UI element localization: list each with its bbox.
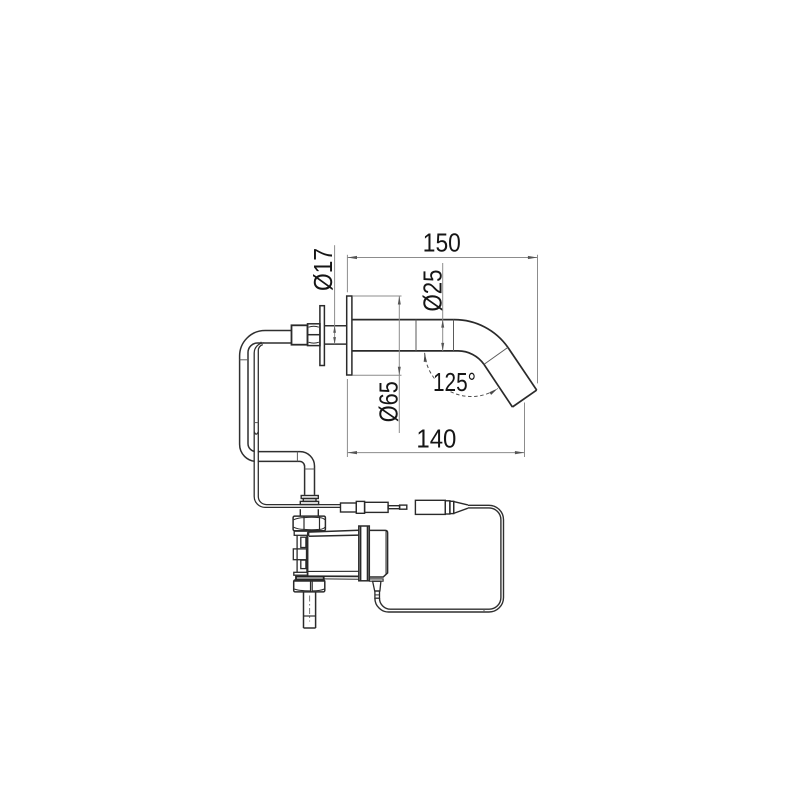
svg-text:140: 140 (416, 424, 456, 454)
svg-text:Ø17: Ø17 (308, 248, 338, 291)
svg-text:Ø25: Ø25 (417, 270, 447, 312)
svg-text:150: 150 (423, 227, 461, 257)
svg-text:125°: 125° (433, 367, 476, 397)
svg-text:Ø65: Ø65 (374, 381, 404, 422)
